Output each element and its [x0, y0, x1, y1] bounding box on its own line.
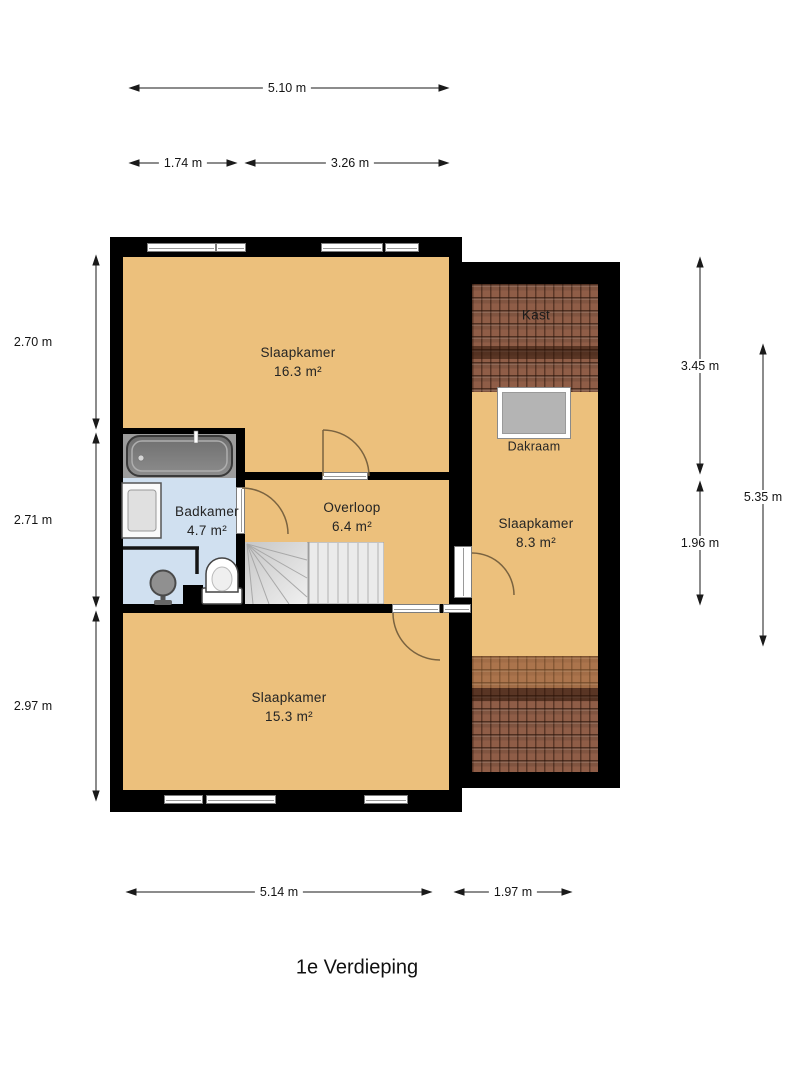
room-label-bedroom-2: Slaapkamer 15.3 m²	[251, 688, 326, 726]
door-arc-bedroom3	[472, 553, 514, 595]
room-area: 8.3 m²	[498, 533, 573, 552]
dim-top-left: 1.74 m	[159, 156, 207, 170]
washbasin	[122, 483, 161, 538]
room-area: 4.7 m²	[175, 521, 239, 540]
dimension-arrows	[93, 85, 766, 895]
dim-left-1: 2.70 m	[9, 335, 57, 349]
roof-window-label: Dakraam	[508, 438, 561, 457]
room-name: Overloop	[323, 498, 380, 517]
door-arc-bathroom	[242, 488, 288, 534]
door-arc-bedroom1	[323, 430, 369, 476]
closet-label: Kast	[522, 306, 550, 325]
room-label-bedroom-1: Slaapkamer 16.3 m²	[260, 343, 335, 381]
room-area: 6.4 m²	[323, 517, 380, 536]
bathtub	[127, 431, 232, 476]
room-label-bedroom-3: Slaapkamer 8.3 m²	[498, 514, 573, 552]
plan-title: 1e Verdieping	[296, 957, 418, 980]
door-arc-bedroom2	[393, 613, 440, 660]
room-name: Slaapkamer	[498, 514, 573, 533]
room-name: Slaapkamer	[251, 688, 326, 707]
dim-top-total: 5.10 m	[263, 81, 311, 95]
floorplan-canvas: Slaapkamer 16.3 m² Badkamer 4.7 m² Overl…	[0, 0, 800, 1067]
room-area: 15.3 m²	[251, 707, 326, 726]
dim-right-3: 5.35 m	[739, 490, 787, 504]
dim-left-2: 2.71 m	[9, 513, 57, 527]
dim-bottom-2: 1.97 m	[489, 885, 537, 899]
dim-right-1: 3.45 m	[676, 359, 724, 373]
dim-left-3: 2.97 m	[9, 699, 57, 713]
toilet	[202, 558, 242, 604]
dim-right-2: 1.96 m	[676, 536, 724, 550]
room-name: Badkamer	[175, 502, 239, 521]
plan-overlay	[0, 0, 800, 1067]
room-label-landing: Overloop 6.4 m²	[323, 498, 380, 536]
room-name: Slaapkamer	[260, 343, 335, 362]
dim-top-right: 3.26 m	[326, 156, 374, 170]
door-swings	[242, 430, 514, 660]
room-label-bathroom: Badkamer 4.7 m²	[175, 502, 239, 540]
room-area: 16.3 m²	[260, 362, 335, 381]
shower	[123, 548, 203, 605]
dim-bottom-1: 5.14 m	[255, 885, 303, 899]
